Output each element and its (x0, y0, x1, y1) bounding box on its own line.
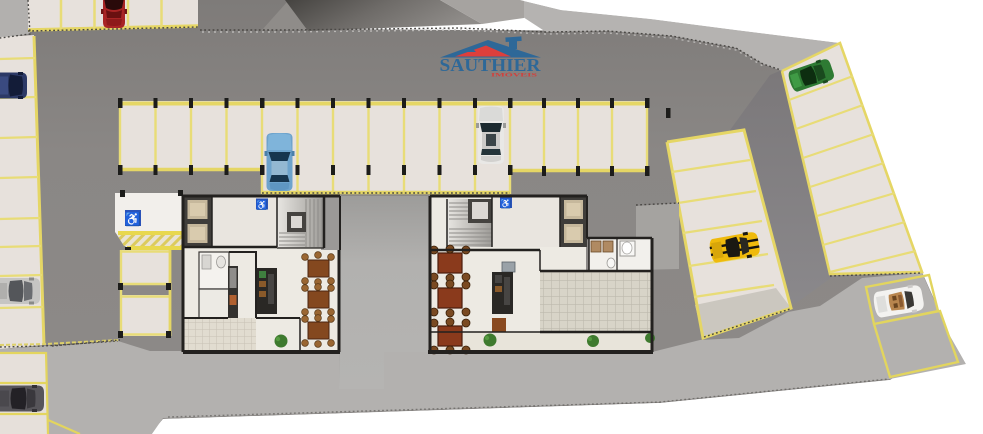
svg-text:IMÓVEIS: IMÓVEIS (491, 71, 537, 79)
svg-text:♿: ♿ (125, 212, 141, 227)
svg-text:♿: ♿ (500, 198, 511, 209)
svg-text:♿: ♿ (256, 199, 267, 210)
